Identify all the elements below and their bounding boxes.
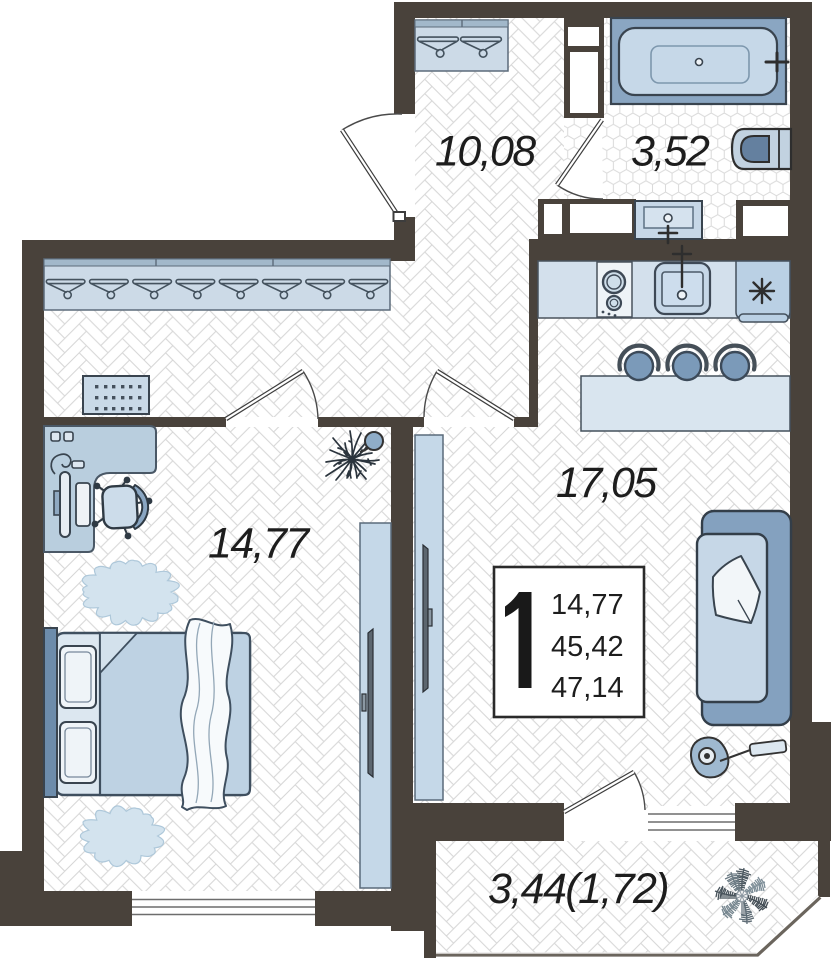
svg-text:3,44(1,72): 3,44(1,72): [488, 865, 668, 913]
svg-text:14,77: 14,77: [208, 520, 311, 568]
svg-text:14,77: 14,77: [551, 589, 624, 621]
svg-text:47,14: 47,14: [551, 672, 624, 704]
svg-text:3,52: 3,52: [631, 128, 710, 176]
svg-text:45,42: 45,42: [551, 631, 624, 663]
svg-text:10,08: 10,08: [435, 128, 536, 176]
svg-text:17,05: 17,05: [556, 459, 658, 507]
